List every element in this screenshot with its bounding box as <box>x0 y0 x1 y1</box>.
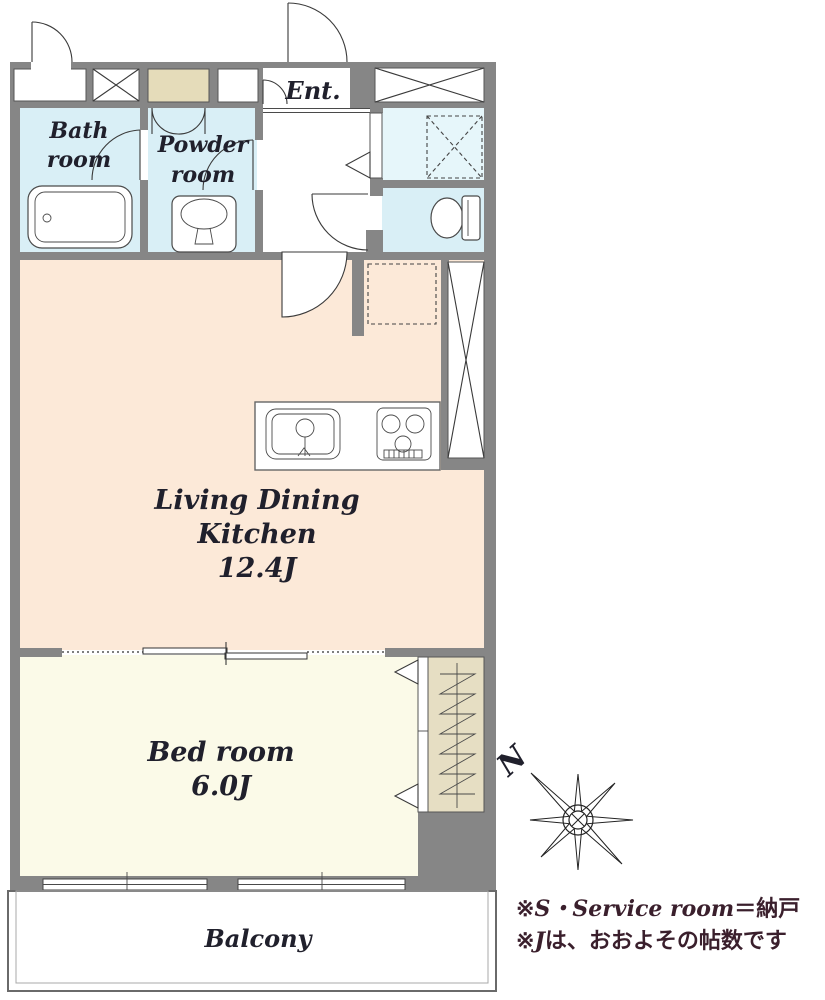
powder-room-label: Powder <box>157 132 250 158</box>
footnote-tatami-count: ※Jは、おおよその帖数です <box>516 928 787 954</box>
top-wall-units <box>14 62 484 108</box>
ldk-size-label: 12.4J <box>218 553 299 584</box>
ldk-label: Living Dining <box>153 485 359 516</box>
kitchen-counter <box>255 402 440 470</box>
exterior-door-icon <box>32 22 72 62</box>
bathroom-label: Bath <box>48 118 108 144</box>
tall-shaft-icon <box>448 262 484 458</box>
pipe-shaft-icon <box>93 69 139 101</box>
laundry-space-floor <box>382 108 484 185</box>
kitchen-stub-wall <box>352 252 364 336</box>
bathtub-icon <box>28 186 132 248</box>
door-opening <box>31 62 71 70</box>
entrance-hall-floor <box>263 108 370 255</box>
footnote-service-room: ※S・Service room＝納戸 <box>516 896 800 922</box>
floorplan-page: Bath room Powder room Ent. Living Dining… <box>0 0 825 1000</box>
pipe-shaft-icon <box>375 68 484 102</box>
shoe-cabinet <box>218 69 258 102</box>
bathroom-label: room <box>47 147 111 173</box>
bedroom-label: Bed room <box>146 737 294 768</box>
meter-box <box>148 69 209 102</box>
entrance-label: Ent. <box>284 76 340 105</box>
washbasin-icon <box>172 196 236 252</box>
ldk-label: Kitchen <box>196 519 316 550</box>
entrance-door-icon <box>288 3 347 62</box>
closet-interior <box>428 657 484 812</box>
toilet-icon <box>431 196 480 240</box>
footnotes: ※S・Service room＝納戸 ※Jは、おおよその帖数です <box>516 896 800 954</box>
floorplan-canvas: Bath room Powder room Ent. Living Dining… <box>0 0 825 1000</box>
bedroom-size-label: 6.0J <box>191 771 253 802</box>
powder-room-label: room <box>171 162 235 188</box>
balcony-label: Balcony <box>204 924 314 953</box>
compass-north-label: N <box>490 738 536 784</box>
storage-box <box>14 69 86 101</box>
compass-rose-icon: N <box>490 738 633 870</box>
